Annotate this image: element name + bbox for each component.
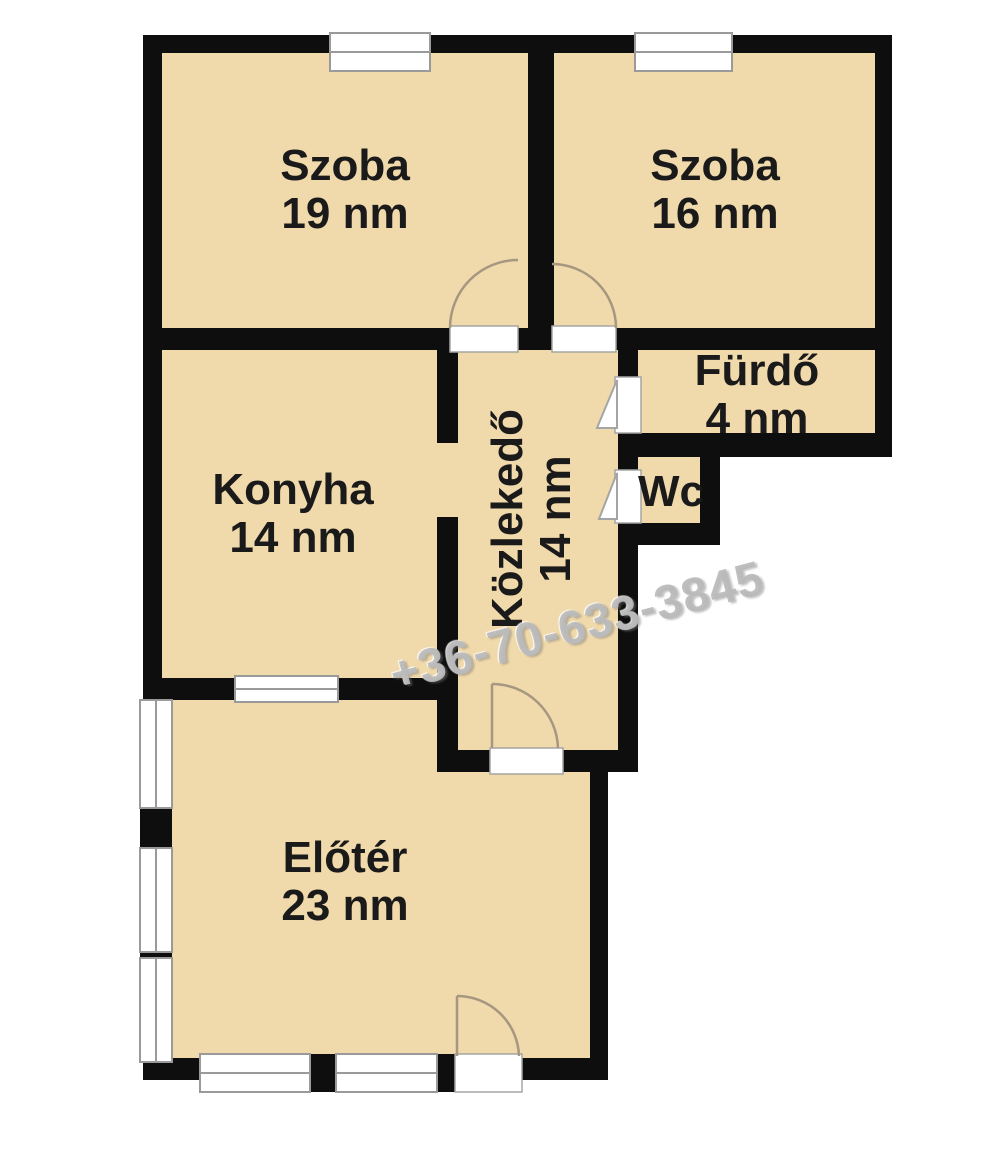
door-opening-kozlekedo-eloter: [490, 748, 563, 774]
room-name: Wc: [638, 468, 704, 516]
room-name: Szoba: [650, 142, 780, 190]
door-opening-furdo: [615, 377, 641, 433]
room-label-eloter: Előtér 23 nm: [281, 834, 408, 930]
room-label-szoba-16: Szoba 16 nm: [650, 142, 780, 238]
room-label-furdo: Fürdő 4 nm: [695, 347, 820, 443]
room-name: Fürdő: [695, 347, 820, 395]
room-area: 16 nm: [650, 190, 780, 238]
wall-pier-bottom-windows-1: [310, 1054, 336, 1092]
wall-pier-bottom-windows-2: [437, 1054, 455, 1092]
door-opening-szoba19: [450, 326, 518, 352]
room-name: Előtér: [281, 834, 408, 882]
door-opening-szoba16: [552, 326, 616, 352]
room-area: 19 nm: [280, 190, 410, 238]
room-area: 23 nm: [281, 882, 408, 930]
room-label-konyha: Konyha 14 nm: [212, 466, 373, 562]
room-area: 4 nm: [695, 395, 820, 443]
room-name: Konyha: [212, 466, 373, 514]
floorplan-canvas: Szoba 19 nm Szoba 16 nm Fürdő 4 nm Wc Ko…: [0, 0, 1000, 1155]
door-opening-entrance: [455, 1054, 522, 1092]
room-area: 14 nm: [532, 409, 580, 629]
wall-exterior-right: [875, 35, 892, 457]
wall-pier-left-windows: [140, 808, 172, 848]
wall-eloter-right: [590, 772, 608, 1080]
wall-between-szoba-rooms: [528, 53, 554, 328]
room-name: Szoba: [280, 142, 410, 190]
wall-konyha-right-upper: [437, 350, 458, 443]
room-name: Közlekedő: [484, 409, 532, 629]
room-area: 14 nm: [212, 514, 373, 562]
room-label-wc: Wc: [638, 468, 704, 516]
wall-exterior-top: [143, 35, 892, 53]
room-label-szoba-19: Szoba 19 nm: [280, 142, 410, 238]
room-label-kozlekedo: Közlekedő 14 nm: [484, 409, 580, 629]
konyha-passage-opening: [437, 443, 458, 517]
